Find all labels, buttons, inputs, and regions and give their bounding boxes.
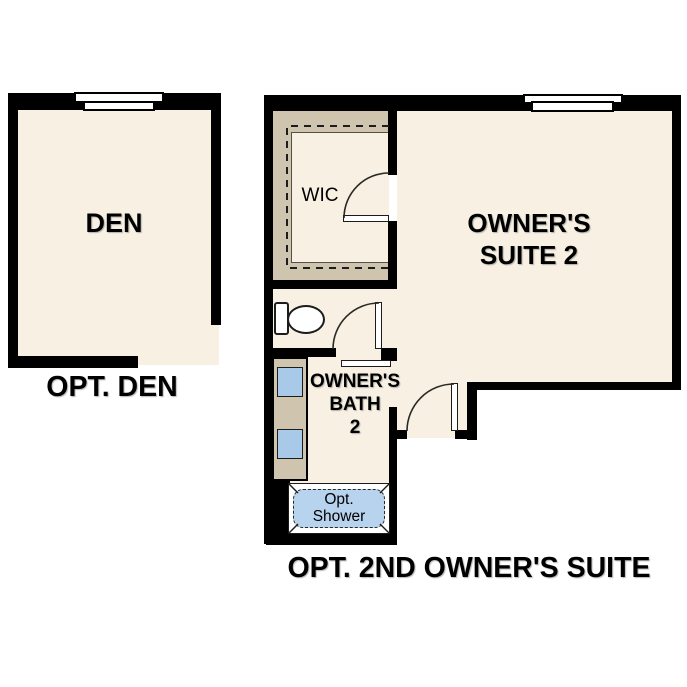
wc-door-leaf bbox=[375, 302, 382, 349]
shower-label-line2: Shower bbox=[304, 509, 374, 526]
bath-corner-block bbox=[269, 480, 290, 543]
wic-suite-divider-lower bbox=[388, 221, 397, 289]
wic-suite-divider-upper bbox=[388, 111, 397, 175]
suite-room-label-line2: SUITE 2 bbox=[459, 239, 599, 271]
den-wall-bottom bbox=[8, 356, 138, 368]
suite-wall-right bbox=[672, 95, 681, 390]
den-wall-right bbox=[211, 93, 221, 325]
sink-icon-2 bbox=[277, 429, 303, 459]
bath-label-line1: OWNER'S bbox=[303, 370, 407, 393]
suite-window-icon-inner bbox=[531, 101, 614, 112]
wc-door-threshold bbox=[341, 360, 391, 367]
suite-room-label-line1: OWNER'S bbox=[459, 207, 599, 239]
den-window-icon-inner bbox=[83, 101, 155, 111]
shower-label-line1: Opt. bbox=[304, 492, 374, 509]
den-room-label: DEN bbox=[54, 208, 174, 238]
den-floor-opening-bottom bbox=[138, 355, 218, 365]
sink-icon-1 bbox=[277, 367, 303, 397]
bath-label-line3: 2 bbox=[303, 416, 407, 439]
wic-label: WIC bbox=[290, 186, 350, 206]
wic-door-leaf bbox=[343, 215, 389, 222]
suite-wall-bottom bbox=[467, 382, 681, 390]
den-wall-left bbox=[8, 93, 18, 368]
suite-room-label: OWNER'S SUITE 2 bbox=[459, 207, 599, 271]
entry-door-leaf bbox=[451, 383, 458, 431]
floorplan-canvas: DEN OPT. DEN WIC OWNER'S SUITE 2 OWNER'S… bbox=[0, 0, 687, 687]
bath-label-line2: BATH bbox=[303, 393, 407, 416]
wc-wall-bottom bbox=[266, 348, 336, 357]
wic-wall-bottom bbox=[264, 280, 397, 289]
entry-wall-right bbox=[455, 430, 477, 439]
shower-label: Opt. Shower bbox=[304, 492, 374, 525]
bath-label: OWNER'S BATH 2 bbox=[303, 370, 407, 439]
toilet-bowl-icon bbox=[287, 305, 325, 334]
den-caption: OPT. DEN bbox=[32, 372, 192, 403]
suite-caption: OPT. 2ND OWNER'S SUITE bbox=[283, 553, 655, 584]
